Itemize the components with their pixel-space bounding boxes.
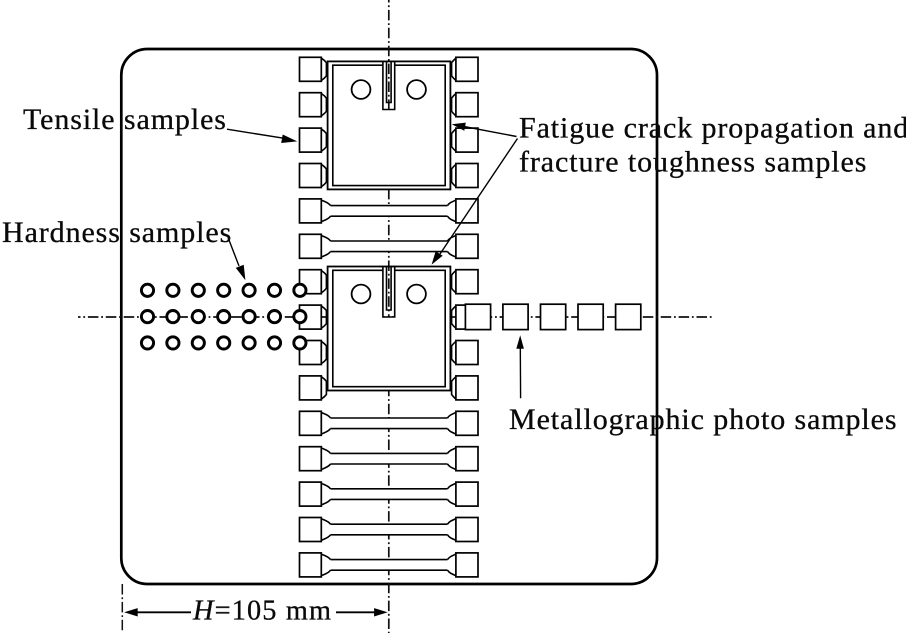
svg-text:H=105 mm: H=105 mm (192, 595, 332, 626)
svg-text:Hardness samples: Hardness samples (2, 216, 232, 249)
svg-text:Metallographic photo samples: Metallographic photo samples (509, 403, 897, 436)
svg-text:fracture toughness samples: fracture toughness samples (519, 146, 867, 179)
svg-text:Tensile samples: Tensile samples (23, 103, 227, 136)
svg-text:Fatigue crack propagation and: Fatigue crack propagation and (519, 112, 906, 145)
